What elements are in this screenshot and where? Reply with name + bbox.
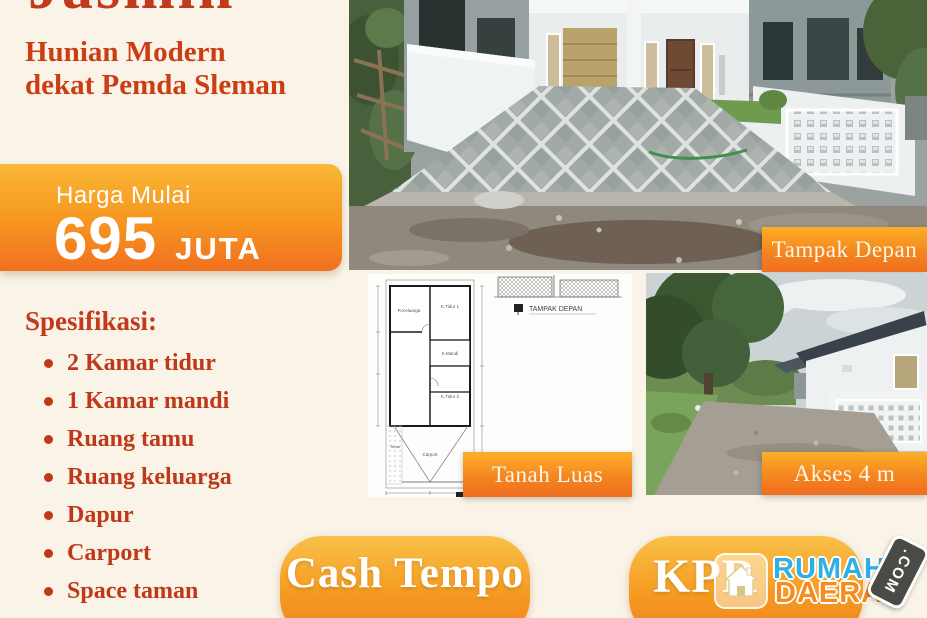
room-label-teras: Teras: [390, 444, 400, 449]
price-row: 695 JUTA: [54, 204, 262, 273]
spec-item-familyroom: Ruang keluarga: [44, 460, 232, 498]
project-title: Jasmin: [28, 0, 235, 24]
property-flyer: Jasmin Hunian Modern dekat Pemda Sleman …: [0, 0, 927, 618]
front-photo-caption: Tampak Depan: [762, 227, 927, 272]
front-caption-text: Tampak Depan: [772, 237, 918, 263]
room-label-carport: Carport: [422, 452, 438, 457]
price-amount: 695: [54, 204, 157, 273]
spec-item-carport: Carport: [44, 536, 232, 574]
elevation-title: TAMPAK DEPAN: [529, 306, 582, 313]
access-caption-text: Akses 4 m: [794, 461, 896, 487]
access-caption: Akses 4 m: [762, 452, 927, 495]
price-banner: Harga Mulai 695 JUTA: [0, 164, 342, 271]
cash-tempo-label: Cash Tempo: [280, 549, 530, 598]
plan-caption-text: Tanah Luas: [492, 462, 603, 488]
room-label-bed1: K.Tidur 1: [441, 304, 460, 309]
cash-tempo-badge: Cash Tempo: [280, 536, 530, 618]
room-label-living: R.Keluarga: [398, 308, 421, 313]
subtitle-line-1: Hunian Modern: [25, 36, 286, 69]
subtitle-line-2: dekat Pemda Sleman: [25, 69, 286, 102]
spec-item-kitchen: Dapur: [44, 498, 232, 536]
room-label-bed2: K.Tidur 2: [441, 394, 460, 399]
plan-caption: Tanah Luas: [463, 452, 632, 497]
flyer-subtitle: Hunian Modern dekat Pemda Sleman: [25, 36, 286, 102]
spec-item-livingroom: Ruang tamu: [44, 422, 232, 460]
spec-item-bedrooms: 2 Kamar tidur: [44, 346, 232, 384]
room-label-bath: K.Mandi: [442, 351, 459, 356]
specs-list: 2 Kamar tidur 1 Kamar mandi Ruang tamu R…: [44, 346, 232, 612]
dotcom-text: .COM: [880, 547, 917, 597]
price-unit: JUTA: [175, 231, 262, 267]
spec-item-garden: Space taman: [44, 574, 232, 612]
spec-item-bathrooms: 1 Kamar mandi: [44, 384, 232, 422]
house-icon: [714, 553, 768, 609]
rumahdaerah-logo: RUMAH DAERAH .COM: [712, 548, 927, 618]
specs-heading: Spesifikasi:: [25, 306, 157, 337]
